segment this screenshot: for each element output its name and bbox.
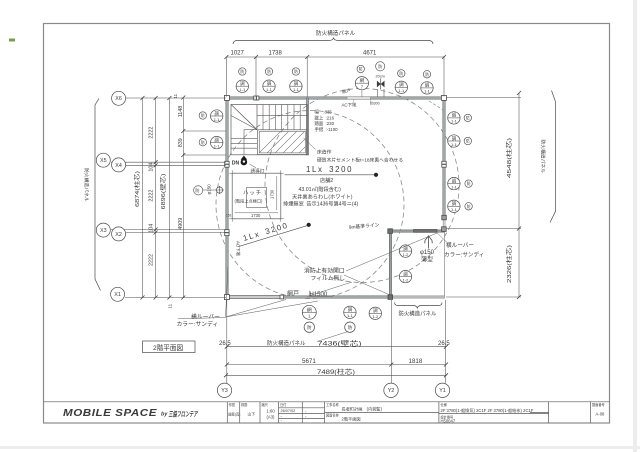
svg-text:防火構造パネル: 防火構造パネル <box>267 339 306 347</box>
svg-text:横ルーバー: 横ルーバー <box>191 312 220 320</box>
svg-text:長者町計画 (内装監): 長者町計画 (内装監) <box>342 406 383 413</box>
svg-text:日付: 日付 <box>280 402 287 407</box>
svg-text:H50047: H50047 <box>441 419 456 424</box>
svg-text:遠藤(真): 遠藤(真) <box>228 412 240 417</box>
svg-text:2222: 2222 <box>148 190 154 202</box>
svg-text:1027: 1027 <box>231 51 245 57</box>
svg-text:防: 防 <box>307 324 312 331</box>
svg-text:26.5: 26.5 <box>438 341 450 347</box>
svg-text:1738: 1738 <box>269 51 283 57</box>
svg-text:硬質木片セメント板t=18床裏へ合わせる: 硬質木片セメント板t=18床裏へ合わせる <box>317 157 403 164</box>
svg-text:MOBILE SPACE: MOBILE SPACE <box>63 407 158 419</box>
svg-text:AC下地: AC下地 <box>235 241 242 256</box>
svg-text:DN: DN <box>232 161 240 167</box>
svg-text:防: 防 <box>348 324 353 331</box>
svg-text:2階平面図: 2階平面図 <box>153 343 183 352</box>
svg-text:6896(壁芯): 6896(壁芯) <box>159 173 167 209</box>
svg-text:横ルーバー: 横ルーバー <box>446 241 474 249</box>
svg-text:縮尺: 縮尺 <box>262 402 269 407</box>
svg-text:26/07/02: 26/07/02 <box>281 409 296 413</box>
svg-text:153: 153 <box>226 214 232 218</box>
svg-text:X6: X6 <box>115 96 122 102</box>
svg-text:薄型: 薄型 <box>421 256 433 264</box>
svg-text:X1: X1 <box>114 292 121 298</box>
svg-text:839: 839 <box>178 138 184 147</box>
svg-text:誘導灯: 誘導灯 <box>251 168 265 175</box>
svg-text:消防上有効開口: 消防上有効開口 <box>304 267 345 275</box>
svg-text:X2: X2 <box>115 232 122 238</box>
svg-text:カラー:サンディ: カラー:サンディ <box>444 251 484 259</box>
svg-text:約300: 約300 <box>370 101 380 106</box>
svg-text:防: 防 <box>195 187 199 194</box>
svg-text:(A3): (A3) <box>267 415 276 420</box>
svg-text:104: 104 <box>148 163 154 172</box>
svg-text:H1500: H1500 <box>310 292 328 298</box>
svg-text:1:60: 1:60 <box>267 409 276 414</box>
svg-text:X3: X3 <box>100 228 107 234</box>
svg-text:by: by <box>161 412 168 418</box>
svg-text:防火構造パネル: 防火構造パネル <box>399 310 437 318</box>
svg-text:仕様: 仕様 <box>441 402 448 407</box>
svg-text:AC下地: AC下地 <box>342 102 357 109</box>
svg-text:1Lx 3200: 1Lx 3200 <box>306 165 352 174</box>
svg-text:φ150: φ150 <box>206 184 211 195</box>
svg-text:7436(壁芯): 7436(壁芯) <box>318 339 362 348</box>
svg-text:防火構造パネル: 防火構造パネル <box>83 168 90 202</box>
svg-text:網: 網 <box>360 77 365 84</box>
svg-text:2222: 2222 <box>148 127 154 139</box>
svg-text:X5: X5 <box>100 158 107 164</box>
svg-text:104: 104 <box>148 224 154 233</box>
svg-text:11: 11 <box>173 93 178 98</box>
svg-text:防火構造パネル: 防火構造パネル <box>316 29 356 37</box>
svg-text:(階段上点検口): (階段上点検口) <box>235 198 264 205</box>
svg-text:天井裏あらわし(ホワイト): 天井裏あらわし(ホワイト) <box>292 192 353 200</box>
svg-text:Y1: Y1 <box>439 388 446 394</box>
svg-text:7489(柱芯): 7489(柱芯) <box>317 368 355 376</box>
svg-text:フィルム無し: フィルム無し <box>311 274 346 282</box>
svg-text:防火構造パネル: 防火構造パネル <box>540 140 547 174</box>
svg-text:網戸: 網戸 <box>287 289 299 297</box>
svg-text:1730: 1730 <box>270 189 275 199</box>
svg-text:1148: 1148 <box>178 106 184 118</box>
svg-text:1818: 1818 <box>409 358 423 365</box>
svg-text:4548(柱芯): 4548(柱芯) <box>505 138 513 178</box>
svg-text:φ150: φ150 <box>420 250 435 256</box>
svg-text:三協フロンテア: 三協フロンテア <box>169 410 199 419</box>
svg-text:5671: 5671 <box>302 358 316 365</box>
svg-text:店舗2: 店舗2 <box>320 176 333 184</box>
svg-text:X4: X4 <box>115 163 122 169</box>
svg-text:Y2: Y2 <box>388 388 395 394</box>
svg-text:床造作: 床造作 <box>317 149 332 156</box>
svg-text:防: 防 <box>378 63 382 69</box>
svg-text:ハッチ: ハッチ <box>243 190 262 197</box>
svg-text:4909: 4909 <box>178 218 184 230</box>
svg-text:網: 網 <box>307 306 312 313</box>
svg-text:6874(柱芯): 6874(柱芯) <box>133 171 141 207</box>
svg-text:Y3: Y3 <box>221 388 228 394</box>
svg-text:カラー:サンディ: カラー:サンディ <box>177 320 219 328</box>
svg-text:26.5: 26.5 <box>219 341 231 347</box>
svg-text:4671: 4671 <box>363 51 377 57</box>
svg-text:検図: 検図 <box>241 402 247 407</box>
svg-text:1730: 1730 <box>251 213 261 218</box>
svg-text:作図: 作図 <box>229 402 235 407</box>
svg-text:2222: 2222 <box>148 254 154 266</box>
svg-text:排煙無窓 告示1436号第4号ニ(4): 排煙無窓 告示1436号第4号ニ(4) <box>283 200 359 208</box>
svg-text:20cm: 20cm <box>376 75 385 79</box>
svg-text:図面名称: 図面名称 <box>326 413 340 418</box>
svg-text:2階平面図: 2階平面図 <box>342 416 361 423</box>
svg-text:山下: 山下 <box>248 412 256 417</box>
svg-text:2326(柱芯): 2326(柱芯) <box>505 245 513 283</box>
svg-text:工事名称: 工事名称 <box>326 402 340 407</box>
svg-text:A-08: A-08 <box>596 412 606 417</box>
svg-text:11: 11 <box>168 303 173 308</box>
svg-text:43.01㎡(階段含む): 43.01㎡(階段含む) <box>299 185 342 193</box>
svg-text:手摺 :-1100: 手摺 :-1100 <box>315 126 339 133</box>
svg-text:図面番号: 図面番号 <box>592 402 605 407</box>
svg-text:2F 3780(1-般換気) 2C1F 2F 3780(1-: 2F 3780(1-般換気) 2C1F 2F 3780(1-般結氷) 2C1F <box>441 407 534 414</box>
